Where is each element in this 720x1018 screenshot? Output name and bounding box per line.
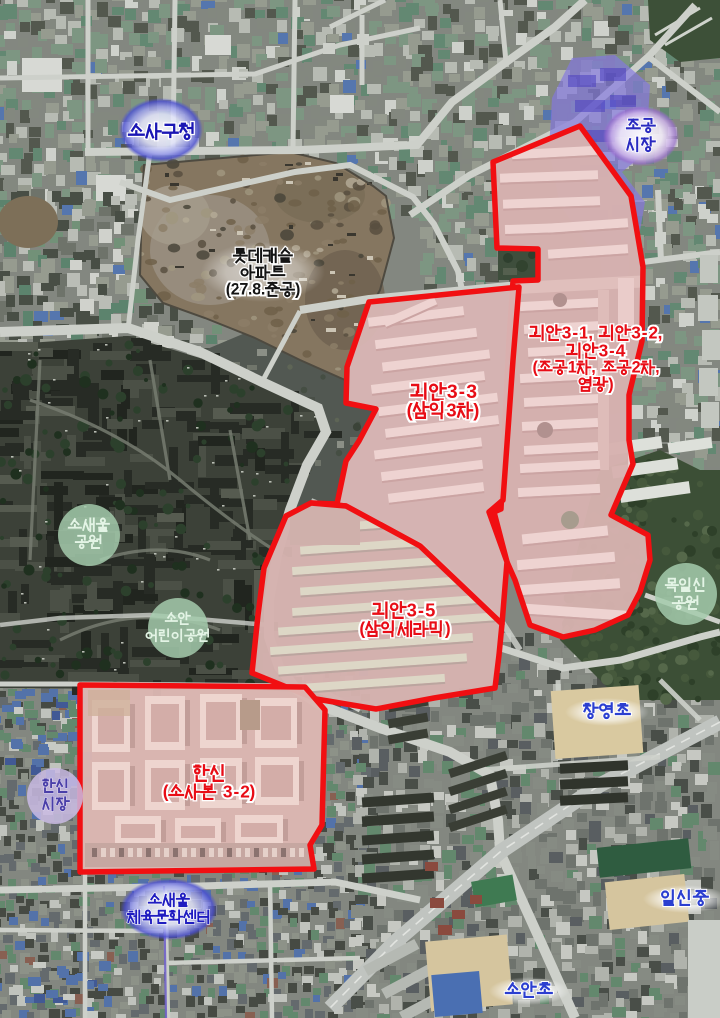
- svg-text:,: ,: [658, 322, 663, 342]
- svg-text:3: 3: [223, 781, 233, 801]
- svg-text:3: 3: [562, 322, 572, 342]
- svg-text:2: 2: [240, 781, 250, 801]
- svg-text:2: 2: [231, 281, 240, 299]
- svg-text:(: (: [163, 781, 169, 801]
- svg-text:): ): [250, 781, 256, 801]
- svg-text:): ): [295, 281, 300, 299]
- svg-text:3: 3: [631, 322, 641, 342]
- svg-text:3: 3: [599, 340, 609, 360]
- svg-text:7: 7: [239, 281, 248, 299]
- svg-text:2: 2: [632, 359, 641, 377]
- svg-text:-: -: [572, 322, 578, 342]
- svg-text:.: .: [261, 281, 266, 299]
- svg-text:,: ,: [588, 322, 593, 342]
- svg-text:3: 3: [446, 399, 456, 420]
- svg-text:): ): [608, 376, 613, 394]
- svg-text:8: 8: [252, 281, 261, 299]
- svg-text:(: (: [533, 359, 539, 377]
- svg-text:,: ,: [591, 359, 596, 377]
- svg-text:-: -: [609, 340, 615, 360]
- svg-text:4: 4: [616, 340, 626, 360]
- svg-text:-: -: [459, 381, 465, 403]
- svg-text:): ): [473, 399, 479, 420]
- svg-text:-: -: [642, 322, 648, 342]
- svg-text:-: -: [418, 599, 424, 620]
- svg-text:(: (: [407, 399, 414, 420]
- svg-text:-: -: [234, 781, 240, 801]
- svg-text:): ): [445, 618, 451, 638]
- svg-text:5: 5: [425, 599, 435, 620]
- svg-text:3: 3: [407, 599, 417, 620]
- svg-text:(: (: [359, 618, 365, 638]
- svg-text:,: ,: [655, 359, 660, 377]
- svg-text:1: 1: [568, 359, 577, 377]
